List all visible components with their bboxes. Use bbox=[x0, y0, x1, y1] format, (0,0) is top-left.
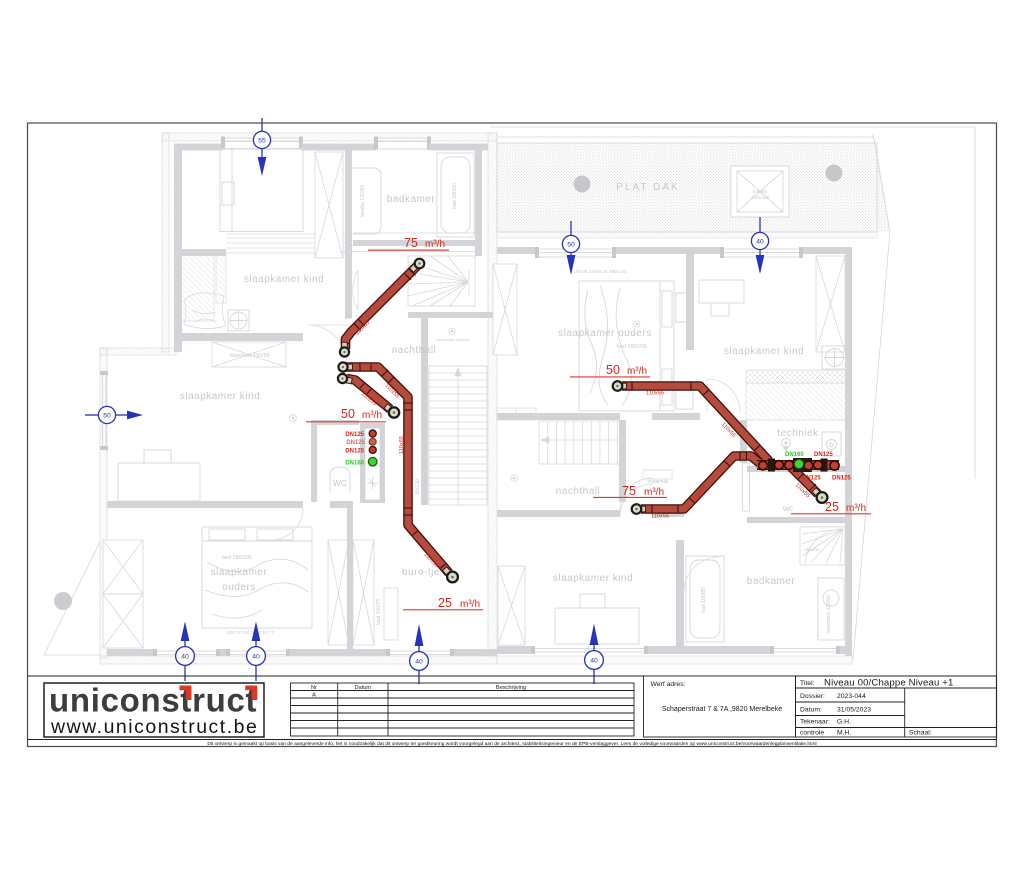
svg-text:Dit ontwerp is gemaakt op basi: Dit ontwerp is gemaakt op basis van de a… bbox=[207, 741, 816, 747]
svg-text:A: A bbox=[312, 693, 316, 699]
svg-text:DN160: DN160 bbox=[345, 460, 364, 466]
svg-text:slaapkamer kind: slaapkamer kind bbox=[180, 391, 260, 402]
svg-text:controle: controle bbox=[800, 730, 824, 737]
svg-text:60/130: 60/130 bbox=[415, 479, 421, 495]
svg-text:Beschrijving: Beschrijving bbox=[496, 685, 526, 691]
svg-text:25: 25 bbox=[438, 596, 452, 610]
svg-text:slaapkamer kind: slaapkamer kind bbox=[724, 346, 804, 357]
svg-text:Datum: Datum bbox=[355, 685, 372, 691]
svg-text:nachthall: nachthall bbox=[392, 345, 437, 356]
svg-text:110x55: 110x55 bbox=[399, 436, 405, 454]
svg-text:Dossier:: Dossier: bbox=[800, 693, 825, 700]
svg-text:Werf adres:: Werf adres: bbox=[651, 681, 686, 688]
svg-text:110x55: 110x55 bbox=[651, 514, 669, 520]
svg-text:25: 25 bbox=[825, 500, 839, 514]
svg-text:Tekenaar:: Tekenaar: bbox=[800, 719, 830, 726]
svg-text:nachthall: nachthall bbox=[556, 486, 601, 497]
svg-text:techniek: techniek bbox=[777, 428, 819, 439]
svg-text:douche: douche bbox=[804, 547, 820, 553]
svg-text:75: 75 bbox=[404, 236, 418, 250]
svg-text:50: 50 bbox=[567, 241, 575, 248]
svg-text:www.uniconstruct.be: www.uniconstruct.be bbox=[50, 716, 258, 738]
svg-text:40: 40 bbox=[181, 653, 189, 660]
svg-text:40: 40 bbox=[252, 653, 260, 660]
svg-text:50: 50 bbox=[606, 363, 620, 377]
svg-text:2023-044: 2023-044 bbox=[837, 693, 866, 700]
svg-text:Niveau 00/Chappe Niveau +1: Niveau 00/Chappe Niveau +1 bbox=[824, 678, 954, 689]
svg-text:55: 55 bbox=[258, 137, 266, 144]
svg-text:m³/h: m³/h bbox=[460, 599, 480, 610]
svg-text:50: 50 bbox=[103, 412, 111, 419]
svg-text:DN125: DN125 bbox=[345, 432, 364, 438]
svg-text:PLAT DAK: PLAT DAK bbox=[616, 182, 679, 193]
svg-text:bed 180/205: bed 180/205 bbox=[617, 344, 647, 350]
svg-text:100x100: 100x100 bbox=[751, 195, 770, 201]
svg-text:DN160: DN160 bbox=[785, 452, 804, 458]
svg-text:DN125: DN125 bbox=[345, 448, 364, 454]
svg-text:slaapkamer kind: slaapkamer kind bbox=[244, 274, 324, 285]
svg-text:slaapkamer ouders: slaapkamer ouders bbox=[558, 328, 652, 339]
svg-text:bad 180/80: bad 180/80 bbox=[701, 587, 707, 613]
svg-text:M.H.: M.H. bbox=[837, 730, 851, 737]
svg-text:kleerkast 150/55: kleerkast 150/55 bbox=[230, 353, 270, 359]
svg-text:75: 75 bbox=[622, 484, 636, 498]
svg-text:G.H.: G.H. bbox=[837, 719, 851, 726]
svg-text:40: 40 bbox=[756, 238, 764, 245]
svg-text:bed 180/205: bed 180/205 bbox=[222, 555, 252, 561]
svg-text:badkamer: badkamer bbox=[747, 576, 796, 587]
svg-text:wc: wc bbox=[782, 503, 794, 513]
svg-text:badkamer: badkamer bbox=[387, 194, 436, 205]
svg-text:m³/h: m³/h bbox=[846, 503, 866, 514]
svg-text:wasmach 120/60: wasmach 120/60 bbox=[826, 595, 832, 633]
svg-text:DN125: DN125 bbox=[814, 452, 833, 458]
svg-text:buro-tje: buro-tje bbox=[402, 567, 440, 578]
svg-text:slaapkamer kind: slaapkamer kind bbox=[553, 573, 633, 584]
svg-text:Datum:: Datum: bbox=[800, 707, 822, 714]
svg-text:slaapkamer: slaapkamer bbox=[211, 567, 268, 578]
svg-text:WC: WC bbox=[333, 478, 347, 488]
svg-text:uniconstruct: uniconstruct bbox=[49, 682, 257, 719]
svg-text:bad 180/90: bad 180/90 bbox=[452, 183, 458, 209]
svg-text:1200 10 120 10 90 10 7 7: 1200 10 120 10 90 10 7 7 bbox=[226, 630, 274, 635]
svg-text:m³/h: m³/h bbox=[627, 366, 647, 377]
svg-text:150 95 2x910 35 490x140: 150 95 2x910 35 490x140 bbox=[573, 269, 627, 274]
svg-text:50: 50 bbox=[341, 407, 355, 421]
svg-text:40: 40 bbox=[590, 657, 598, 664]
svg-text:Schaal:: Schaal: bbox=[909, 730, 932, 737]
svg-text:31/05/2023: 31/05/2023 bbox=[837, 707, 871, 714]
svg-text:m³/h: m³/h bbox=[362, 410, 382, 421]
svg-text:m³/h: m³/h bbox=[425, 239, 445, 250]
svg-text:Nr: Nr bbox=[311, 685, 317, 691]
svg-text:lavabo 120/50: lavabo 120/50 bbox=[360, 185, 366, 218]
svg-text:rookmelder optioneel: rookmelder optioneel bbox=[436, 338, 470, 342]
svg-text:DN125: DN125 bbox=[346, 440, 365, 446]
svg-text:m³/h: m³/h bbox=[644, 487, 664, 498]
svg-text:Schaperstraat 7 & 7A ,9820 Mer: Schaperstraat 7 & 7A ,9820 Merelbeke bbox=[662, 706, 782, 713]
svg-text:ouders: ouders bbox=[222, 582, 256, 593]
svg-text:Titel:: Titel: bbox=[800, 680, 815, 687]
svg-text:DN125: DN125 bbox=[832, 476, 851, 482]
svg-text:40: 40 bbox=[415, 658, 423, 665]
svg-text:koepel: koepel bbox=[753, 189, 767, 195]
svg-text:110x55: 110x55 bbox=[646, 391, 664, 397]
svg-text:DN125: DN125 bbox=[802, 476, 821, 482]
svg-text:kast 160/75: kast 160/75 bbox=[376, 599, 382, 625]
